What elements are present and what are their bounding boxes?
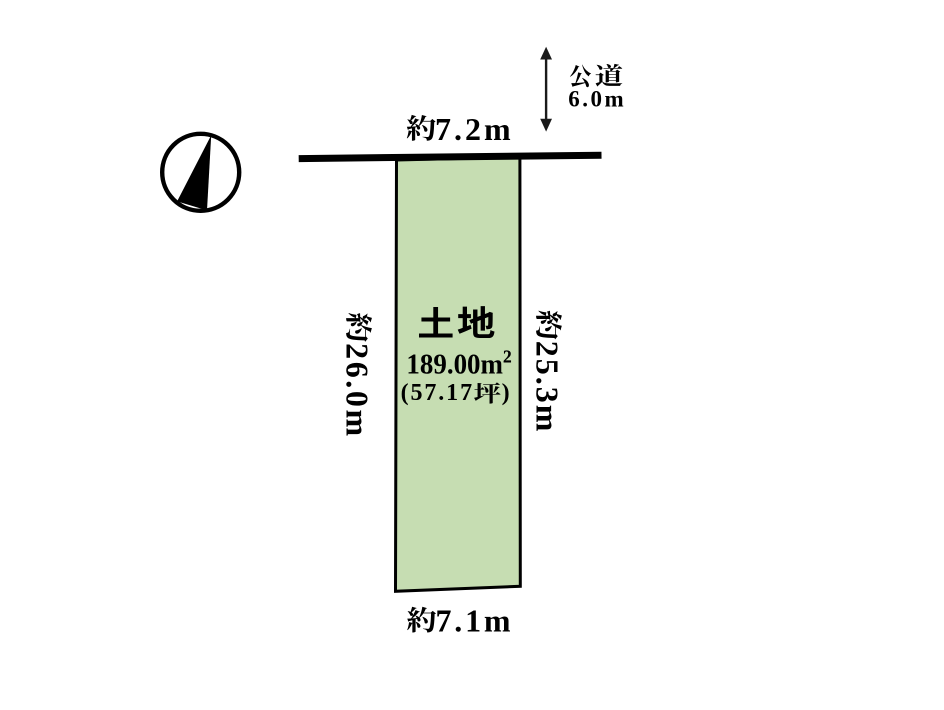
svg-text:26.0m: 26.0m: [340, 343, 376, 439]
svg-text:7.2m: 7.2m: [435, 111, 514, 147]
svg-text:189.00m: 189.00m: [406, 350, 503, 381]
svg-text:7.1m: 7.1m: [436, 603, 514, 639]
svg-text:): ): [502, 380, 510, 406]
svg-text:25.3m: 25.3m: [530, 341, 566, 434]
svg-text:(57.17: (57.17: [401, 380, 474, 406]
svg-text:6.0m: 6.0m: [568, 87, 626, 112]
svg-text:²: ²: [503, 344, 512, 377]
